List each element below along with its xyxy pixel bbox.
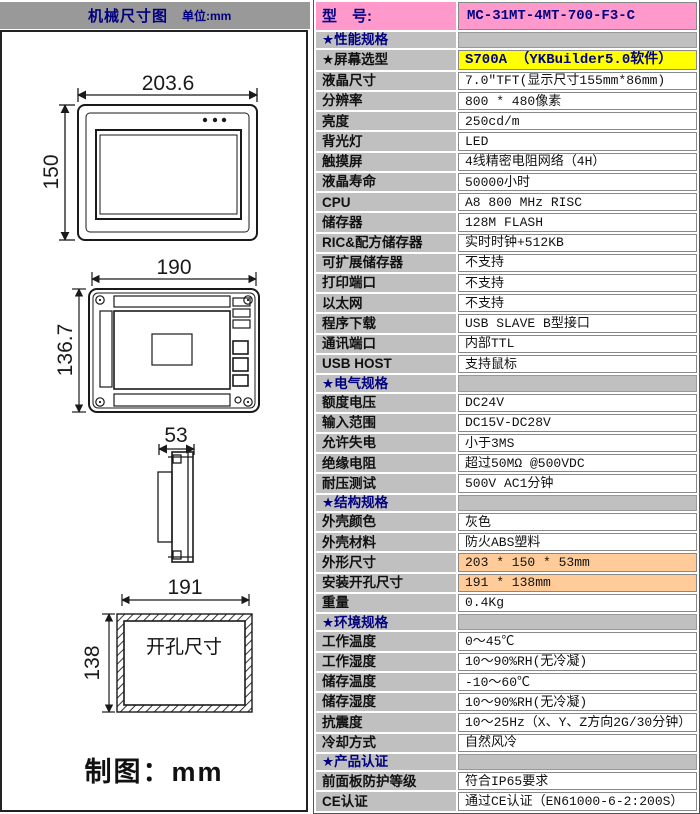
spec-row: 储存温度-10～60℃ [316,673,697,691]
spec-row: 储存湿度10～90%RH(无冷凝) [316,693,697,711]
section-label: ★产品认证 [316,754,456,770]
spec-value: 800 * 480像素 [458,92,697,110]
spec-value: 128M FLASH [458,213,697,231]
spec-table: 型 号: MC-31MT-4MT-700-F3-C ★性能规格★屏幕选型S700… [313,0,700,814]
spec-label: USB HOST [316,355,456,373]
spec-value: DC15V-DC28V [458,414,697,432]
spec-row: 冷却方式自然风冷 [316,734,697,752]
spec-row: 外壳材料防火ABS塑料 [316,533,697,551]
section-label: ★电气规格 [316,375,456,391]
spec-value: 支持鼠标 [458,355,697,373]
spec-row: 工作温度0～45℃ [316,632,697,650]
led-indicator-dot [222,118,226,122]
spec-row: CE认证通过CE认证（EN61000-6-2:200S） [316,792,697,811]
spec-row: 液晶尺寸7.0"TFT(显示尺寸155mm*86mm) [316,72,697,90]
spec-value: DC24V [458,394,697,412]
spec-label: CPU [316,193,456,211]
spec-value: USB SLAVE B型接口 [458,314,697,332]
spec-value: 7.0"TFT(显示尺寸155mm*86mm) [458,72,697,90]
spec-row: 安装开孔尺寸191 * 138mm [316,574,697,592]
section-label: ★性能规格 [316,32,456,48]
spec-value: 50000小时 [458,173,697,191]
spec-label: 液晶尺寸 [316,72,456,90]
mechanical-drawing-header: 机械尺寸图 单位:mm [0,2,310,29]
spec-label: 触摸屏 [316,153,456,171]
spec-label: 储存器 [316,213,456,231]
spec-value: 自然风冷 [458,734,697,752]
spec-label: 绝缘电阻 [316,454,456,472]
spec-value: 符合IP65要求 [458,772,697,790]
spec-label: 额度电压 [316,394,456,412]
spec-label: 安装开孔尺寸 [316,574,456,592]
cutout-label: 开孔尺寸 [146,636,222,658]
spec-label: 冷却方式 [316,734,456,752]
spec-label: 液晶寿命 [316,173,456,191]
spec-value: A8 800 MHz RISC [458,193,697,211]
spec-label: 储存温度 [316,673,456,691]
front-height-dimension: 150 [40,154,63,189]
spec-value: 不支持 [458,254,697,272]
spec-row: 储存器128M FLASH [316,213,697,231]
spec-row: 分辨率800 * 480像素 [316,92,697,110]
mechanical-drawing-title: 机械尺寸图 [88,5,168,26]
spec-row: RIC&配方储存器实时时钟+512KB [316,234,697,252]
spec-label: 打印端口 [316,274,456,292]
spec-row: 前面板防护等级符合IP65要求 [316,772,697,790]
section-row: ★电气规格 [316,375,697,391]
spec-value: 10～25Hz（X、Y、Z方向2G/30分钟） [458,713,697,731]
side-depth-dimension: 53 [164,424,187,447]
spec-label: CE认证 [316,792,456,811]
spec-row: 绝缘电阻超过50MΩ @500VDC [316,454,697,472]
led-indicator-dot [213,118,217,122]
spec-row: 液晶寿命50000小时 [316,173,697,191]
spec-value: 通过CE认证（EN61000-6-2:200S） [458,792,697,811]
section-label: ★结构规格 [316,495,456,511]
spec-label: ★屏幕选型 [316,50,456,69]
spec-row: 亮度250cd/m [316,112,697,130]
mechanical-drawing-panel: 203.6 150 [0,30,308,812]
front-view-drawing [59,88,257,240]
section-row: ★环境规格 [316,614,697,630]
section-row: ★结构规格 [316,495,697,511]
spec-value: S700A （YKBuilder5.0软件） [458,50,697,69]
spec-value: 0.4Kg [458,594,697,612]
spec-row: CPUA8 800 MHz RISC [316,193,697,211]
section-label: ★环境规格 [316,614,456,630]
dimension-drawings: 203.6 150 [2,32,306,810]
spec-row: 程序下载USB SLAVE B型接口 [316,314,697,332]
spec-label: 允许失电 [316,434,456,452]
front-width-dimension: 203.6 [142,72,195,95]
spec-value: 10～90%RH(无冷凝) [458,653,697,671]
spec-label: 背光灯 [316,132,456,150]
spec-value: 防火ABS塑料 [458,533,697,551]
spec-row: 背光灯LED [316,132,697,150]
spec-label: 工作温度 [316,632,456,650]
spec-value: 灰色 [458,513,697,531]
spec-label: 抗震度 [316,713,456,731]
spec-row: ★屏幕选型S700A （YKBuilder5.0软件） [316,50,697,69]
model-value: MC-31MT-4MT-700-F3-C [458,2,697,30]
spec-row: 外壳颜色灰色 [316,513,697,531]
spec-row: 输入范围DC15V-DC28V [316,414,697,432]
cutout-height-dimension: 138 [81,645,104,680]
spec-value: 191 * 138mm [458,574,697,592]
spec-value: 203 * 150 * 53mm [458,553,697,571]
spec-value [458,495,697,511]
spec-value [458,754,697,770]
spec-row: 抗震度10～25Hz（X、Y、Z方向2G/30分钟） [316,713,697,731]
led-indicator-dot [203,118,207,122]
spec-value: 小于3MS [458,434,697,452]
spec-row: 外形尺寸203 * 150 * 53mm [316,553,697,571]
spec-value [458,614,697,630]
spec-value: LED [458,132,697,150]
spec-label: 分辨率 [316,92,456,110]
spec-value: 4线精密电阻网络（4H） [458,153,697,171]
spec-table-body: 型 号: MC-31MT-4MT-700-F3-C ★性能规格★屏幕选型S700… [316,2,697,811]
spec-label: RIC&配方储存器 [316,234,456,252]
model-label: 型 号: [316,2,456,30]
rear-height-dimension: 136.7 [54,324,77,377]
rear-view-drawing [72,272,259,412]
spec-label: 亮度 [316,112,456,130]
spec-value: 不支持 [458,294,697,312]
spec-row: 工作湿度10～90%RH(无冷凝) [316,653,697,671]
spec-label: 以太网 [316,294,456,312]
spec-label: 程序下载 [316,314,456,332]
spec-sheet-page: 机械尺寸图 单位:mm [0,0,700,814]
spec-label: 输入范围 [316,414,456,432]
side-view-drawing [158,444,194,562]
spec-label: 储存湿度 [316,693,456,711]
spec-label: 外壳颜色 [316,513,456,531]
cutout-width-dimension: 191 [167,576,202,599]
section-row: ★性能规格 [316,32,697,48]
spec-value: -10～60℃ [458,673,697,691]
spec-label: 可扩展储存器 [316,254,456,272]
spec-value: 10～90%RH(无冷凝) [458,693,697,711]
spec-value [458,375,697,391]
spec-row: 以太网不支持 [316,294,697,312]
spec-row: 额度电压DC24V [316,394,697,412]
spec-label: 外壳材料 [316,533,456,551]
spec-value: 超过50MΩ @500VDC [458,454,697,472]
spec-label: 通讯端口 [316,335,456,353]
spec-label: 耐压测试 [316,474,456,492]
spec-value [458,32,697,48]
spec-value: 250cd/m [458,112,697,130]
spec-row: 耐压测试500V AC1分钟 [316,474,697,492]
spec-row: USB HOST支持鼠标 [316,355,697,373]
spec-value: 实时时钟+512KB [458,234,697,252]
model-row: 型 号: MC-31MT-4MT-700-F3-C [316,2,697,30]
rear-width-dimension: 190 [156,256,191,279]
spec-value: 0～45℃ [458,632,697,650]
drawing-unit-footer: 制图：mm [2,750,306,789]
spec-label: 前面板防护等级 [316,772,456,790]
spec-label: 重量 [316,594,456,612]
spec-row: 重量0.4Kg [316,594,697,612]
spec-value: 不支持 [458,274,697,292]
spec-value: 500V AC1分钟 [458,474,697,492]
section-row: ★产品认证 [316,754,697,770]
spec-row: 允许失电小于3MS [316,434,697,452]
spec-value: 内部TTL [458,335,697,353]
spec-label: 外形尺寸 [316,553,456,571]
unit-label: 单位:mm [182,7,231,24]
spec-row: 可扩展储存器不支持 [316,254,697,272]
spec-row: 触摸屏4线精密电阻网络（4H） [316,153,697,171]
spec-row: 打印端口不支持 [316,274,697,292]
spec-label: 工作湿度 [316,653,456,671]
spec-row: 通讯端口内部TTL [316,335,697,353]
